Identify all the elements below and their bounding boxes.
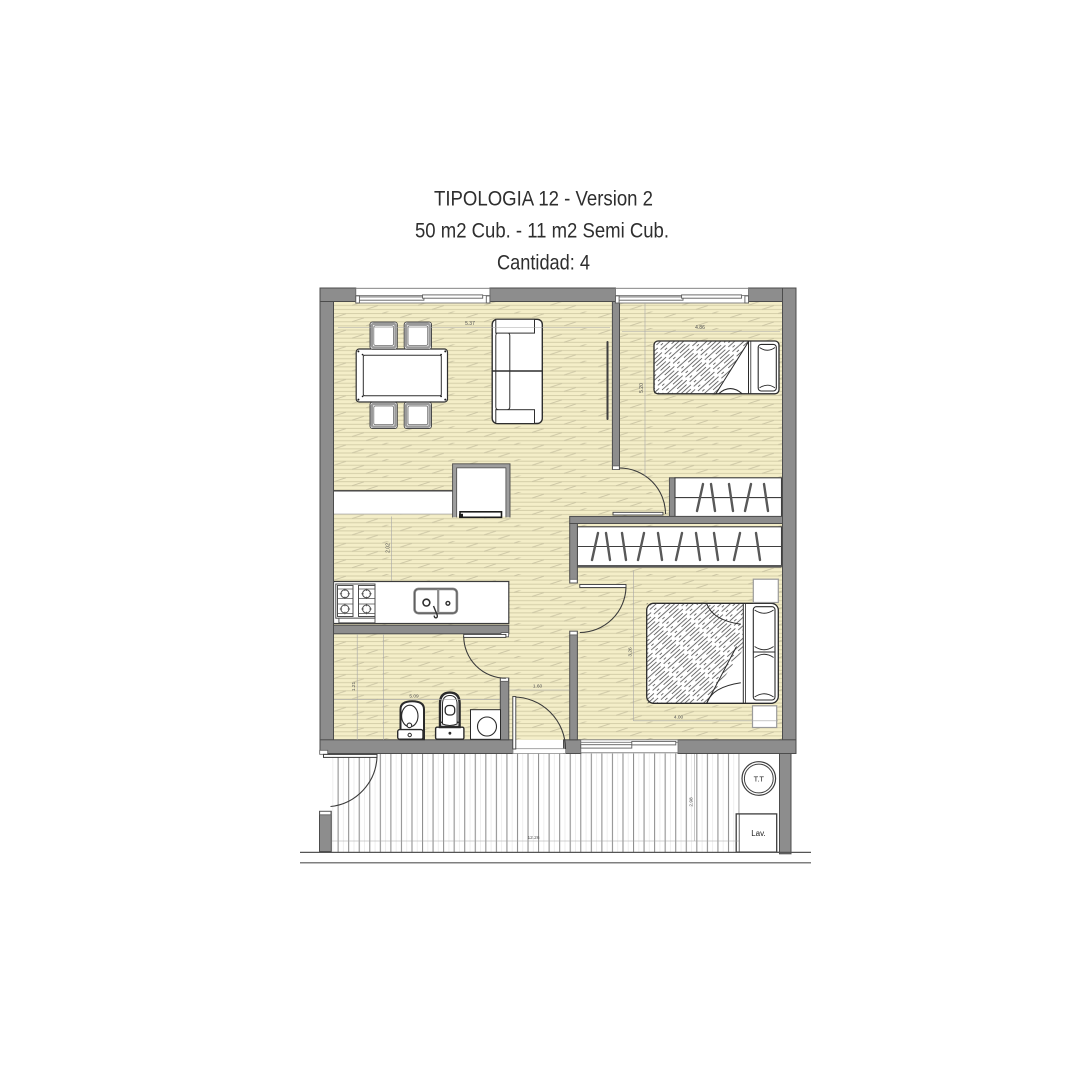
svg-text:2.98: 2.98 [689, 797, 695, 807]
svg-text:4.00: 4.00 [674, 715, 684, 721]
svg-text:2.02: 2.02 [386, 543, 392, 553]
svg-text:5.37: 5.37 [465, 321, 475, 327]
svg-text:50 m2 Cub. - 11 m2 Semi Cub.: 50 m2 Cub. - 11 m2 Semi Cub. [415, 220, 669, 243]
svg-text:Cantidad: 4: Cantidad: 4 [497, 251, 590, 274]
svg-text:5.20: 5.20 [639, 383, 645, 393]
svg-text:12.26: 12.26 [527, 835, 539, 841]
svg-text:T.T: T.T [754, 774, 765, 783]
svg-text:5.09: 5.09 [409, 694, 419, 700]
svg-text:3.26: 3.26 [628, 647, 634, 657]
svg-text:1.21: 1.21 [351, 682, 357, 692]
svg-text:TIPOLOGIA 12 - Version 2: TIPOLOGIA 12 - Version 2 [434, 187, 653, 210]
svg-text:4.86: 4.86 [695, 325, 705, 331]
svg-text:1.60: 1.60 [533, 684, 543, 690]
svg-text:Lav.: Lav. [751, 829, 766, 838]
